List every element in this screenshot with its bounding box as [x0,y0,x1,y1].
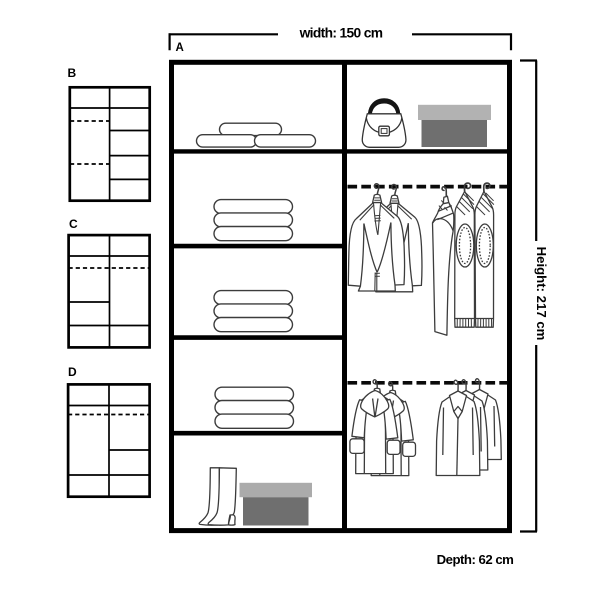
svg-text:Height: 217 cm: Height: 217 cm [534,247,549,341]
svg-text:width: 150 cm: width: 150 cm [299,26,383,41]
svg-text:B: B [68,66,77,80]
svg-text:Depth: 62 cm: Depth: 62 cm [437,552,514,567]
svg-text:C: C [69,217,78,231]
svg-text:D: D [68,365,77,379]
svg-text:A: A [176,42,184,54]
